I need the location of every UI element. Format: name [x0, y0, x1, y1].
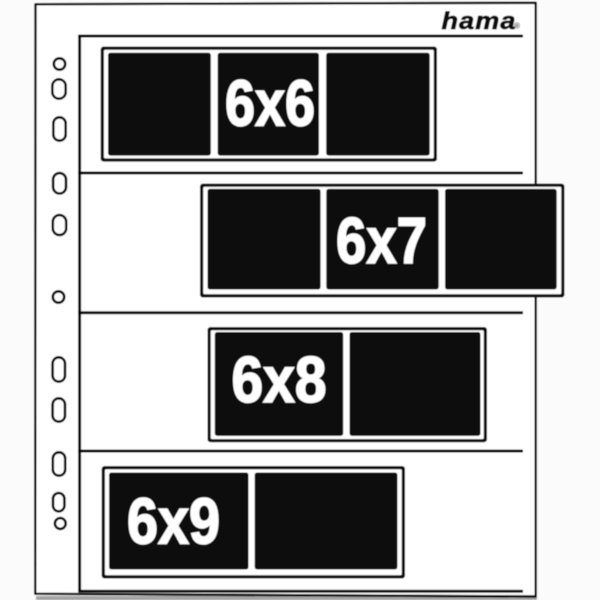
- svg-text:6x8: 6x8: [232, 343, 327, 416]
- svg-text:hama: hama: [442, 8, 517, 35]
- svg-text:®: ®: [514, 22, 520, 31]
- svg-text:6x9: 6x9: [127, 485, 220, 558]
- svg-text:6x6: 6x6: [225, 67, 315, 140]
- svg-text:6x7: 6x7: [336, 204, 427, 277]
